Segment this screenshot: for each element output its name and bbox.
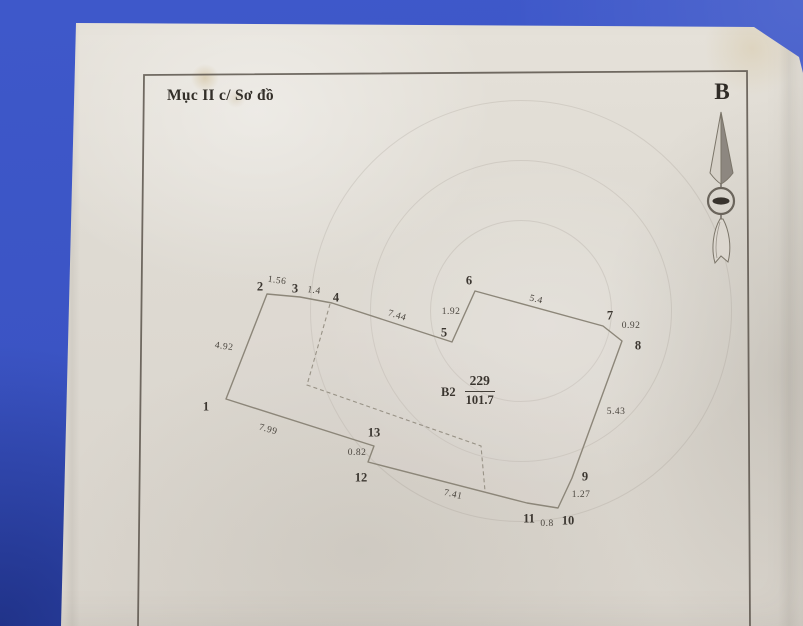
vertex-label-10: 10 [562,514,575,529]
edge-length-label: 0.82 [348,448,367,458]
vertex-label-4: 4 [333,291,339,306]
parcel-area: 101.7 [466,392,494,409]
vertex-label-3: 3 [292,282,298,297]
parcel-number: 229 [465,373,495,392]
vertex-label-13: 13 [368,426,381,441]
parcel-number-area-fraction: 229 101.7 [465,373,495,409]
edge-length-label: 0.92 [622,321,641,331]
vertex-label-12: 12 [355,471,368,486]
edge-length-label: 1.27 [572,490,591,500]
edge-length-label: 5.43 [607,407,626,417]
vertex-label-7: 7 [607,309,613,324]
parcel-block-label: B2 [441,381,456,400]
edge-length-label: 1.92 [442,307,461,317]
vertex-label-9: 9 [582,470,588,485]
vertex-label-11: 11 [523,512,535,527]
edge-length-label: 1.4 [307,285,322,297]
vertex-label-1: 1 [203,400,209,415]
vertex-label-5: 5 [441,326,447,341]
parcel-label: B2 229 101.7 [441,373,495,409]
edge-length-label: 0.8 [540,519,553,529]
north-arrow-icon [708,112,734,263]
vertex-label-6: 6 [466,274,472,289]
page-title: Mục II c/ Sơ đồ [167,87,274,105]
parcel-outline [226,291,622,508]
vertex-label-8: 8 [635,339,641,354]
vertex-label-2: 2 [257,280,263,295]
photo-stage: Mục II c/ Sơ đồ B 123456789101112131.561… [0,0,803,626]
compass-north-label: B [709,79,735,105]
